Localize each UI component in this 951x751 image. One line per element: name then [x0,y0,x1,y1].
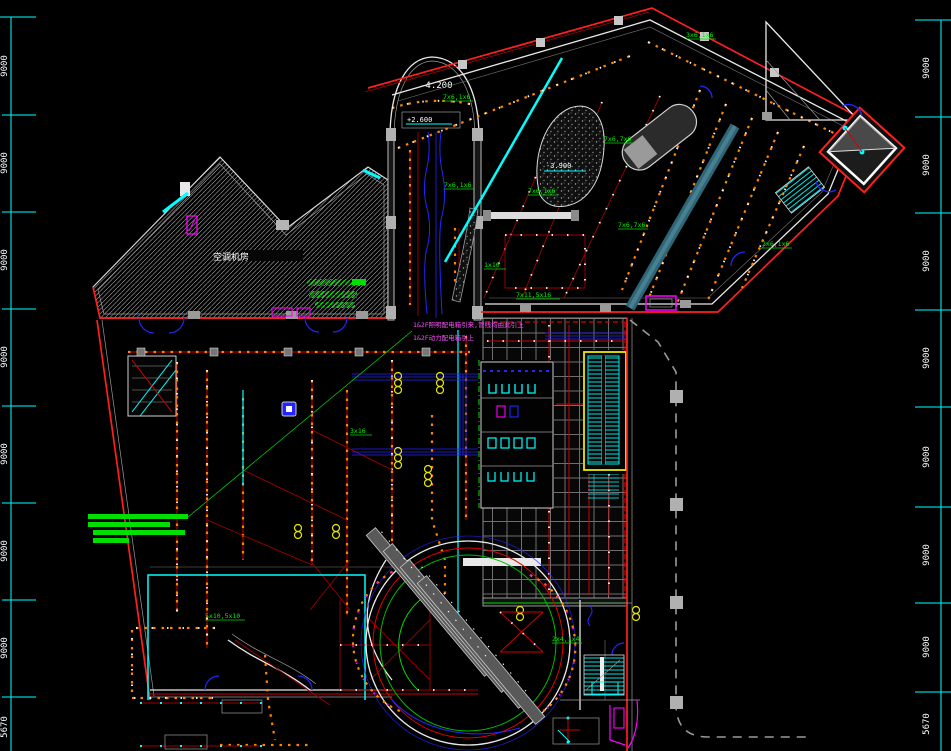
level-label-pit: -3.900 [546,162,571,170]
door-swing [731,252,745,266]
green-note-bar [88,514,188,519]
green-hatch-bar [309,291,357,298]
circuit-tag: 3x6,1x6 [686,31,713,39]
cad-viewport[interactable]: 9000 9000 9000 9000 9000 9000 9000 5670 … [0,0,951,751]
dim-label: 9000 [922,250,932,272]
green-note-bar [88,522,170,527]
circuit-tag: 5x10,5x10 [205,612,240,620]
circuit-tag: 1x10 [484,261,500,269]
stair [128,356,176,416]
dim-label: 9000 [922,636,932,658]
fixture-box [553,718,599,744]
dim-label: 5670 [0,716,10,738]
room-label-ac: 空调机房 [213,251,249,263]
circuit-tag: 2x6,1x6 [762,240,789,248]
restrooms [479,360,553,508]
roof-hatched-area: 空调机房 [93,157,388,333]
circuit-tag: 7x6,7x6 [604,135,631,143]
green-hatch-bar [315,302,355,308]
door-swing [700,86,712,98]
diamond-structure [816,105,904,193]
green-note-bar [93,538,129,543]
bridge [487,212,575,219]
circuit-tag: 7x6,1x6 [444,181,471,189]
circuit-tag: 7x6,1x6 [443,93,470,101]
door-swing [305,318,347,332]
dim-label: 9000 [922,446,932,468]
dim-label: 9000 [922,57,932,79]
green-note-bar [93,530,185,535]
circuit-tag: 7x11,5x16 [516,291,551,299]
door-swing [205,676,312,690]
circuit [432,415,445,600]
dimension-line-right: 9000 9000 9000 9000 9000 9000 9000 5670 [915,20,951,751]
level-label-box: +2.600 [407,116,432,124]
circuit-tag: 7x6,1x6 [528,187,555,195]
circuit-tag: 2x4,1x4 [552,635,579,643]
circuit-tag: 7x6,7x6 [618,221,645,229]
dim-label: 9000 [922,347,932,369]
cable-route [148,575,365,700]
dim-label: 9000 [922,154,932,176]
dim-label: 9000 [0,637,10,659]
dimension-line-left: 9000 9000 9000 9000 9000 9000 9000 5670 [0,17,36,751]
circuit-tag: 3x16 [350,427,366,435]
dim-label: 9000 [922,544,932,566]
door-swing [139,318,184,333]
dim-label: 9000 [0,249,10,271]
dim-label: 9000 [0,55,10,77]
dim-label: 9000 [0,540,10,562]
red-truss [500,612,543,652]
property-dashed-line [630,320,812,737]
note-line-2: 1&2F动力配电箱引上 [413,333,475,342]
note-line-1: 1&2F照明配电箱引来,管线均由此引上 [413,320,524,329]
dim-label: 9000 [0,346,10,368]
dim-label: 9000 [0,443,10,465]
grille [775,167,824,213]
stair-bottom [584,655,624,695]
light-row [392,101,470,108]
green-bar [352,279,366,285]
dim-label: 9000 [0,152,10,174]
dim-label: 5670 [922,713,932,735]
door-swing [612,643,624,655]
cad-canvas[interactable]: 9000 9000 9000 9000 9000 9000 9000 5670 … [0,0,951,751]
